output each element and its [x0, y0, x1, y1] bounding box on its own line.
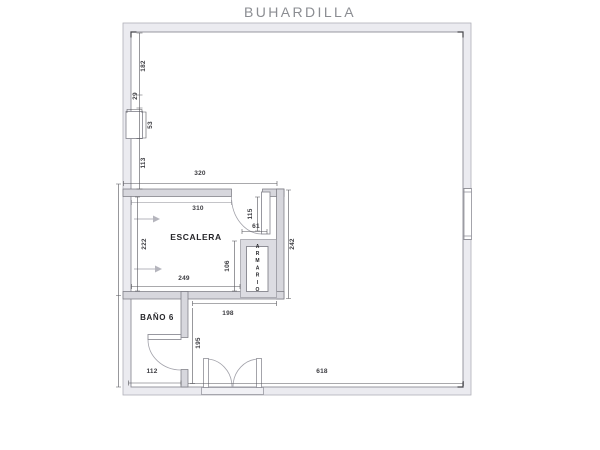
- escalera-top-wall-left: [123, 189, 232, 197]
- left-door-leaf: [204, 359, 209, 388]
- window-frame: [126, 112, 143, 139]
- window-frame: [464, 189, 472, 240]
- dim-115: 115: [248, 208, 255, 219]
- dim-106: 106: [225, 260, 232, 271]
- right-window: [464, 189, 472, 240]
- dim-310: 310: [192, 206, 203, 213]
- dim-113: 113: [141, 157, 148, 168]
- dim-618: 618: [316, 369, 327, 376]
- escalera-right-wall: [277, 189, 285, 299]
- dim-29: 29: [133, 92, 140, 100]
- room-label-escalera: ESCALERA: [170, 233, 222, 242]
- door-leaf: [262, 192, 271, 234]
- dim-242: 242: [290, 238, 297, 249]
- dim-53: 53: [148, 121, 155, 129]
- dim-112: 112: [146, 369, 157, 376]
- room-label-bano: BAÑO 6: [140, 314, 174, 322]
- floor-plan: [0, 0, 600, 450]
- floorplan-page: BUHARDILLA 182 29 53 113 320 310 ESCALER…: [0, 0, 600, 450]
- dim-61: 61: [252, 224, 260, 231]
- dim-320: 320: [194, 171, 205, 178]
- room-label-armario: ARMARIO: [255, 244, 260, 294]
- right-door-leaf: [257, 359, 262, 388]
- dim-195: 195: [196, 337, 203, 348]
- plan-title: BUHARDILLA: [0, 4, 600, 20]
- dim-outer-left-line: [116, 184, 121, 387]
- dim-249: 249: [178, 276, 189, 283]
- door-leaf: [148, 335, 181, 340]
- dim-198: 198: [222, 311, 233, 318]
- bano-right-wall-upper: [181, 292, 188, 338]
- threshold: [202, 388, 264, 395]
- bano-right-wall-lower: [181, 370, 188, 388]
- dim-182: 182: [141, 60, 148, 71]
- dim-222: 222: [142, 238, 149, 249]
